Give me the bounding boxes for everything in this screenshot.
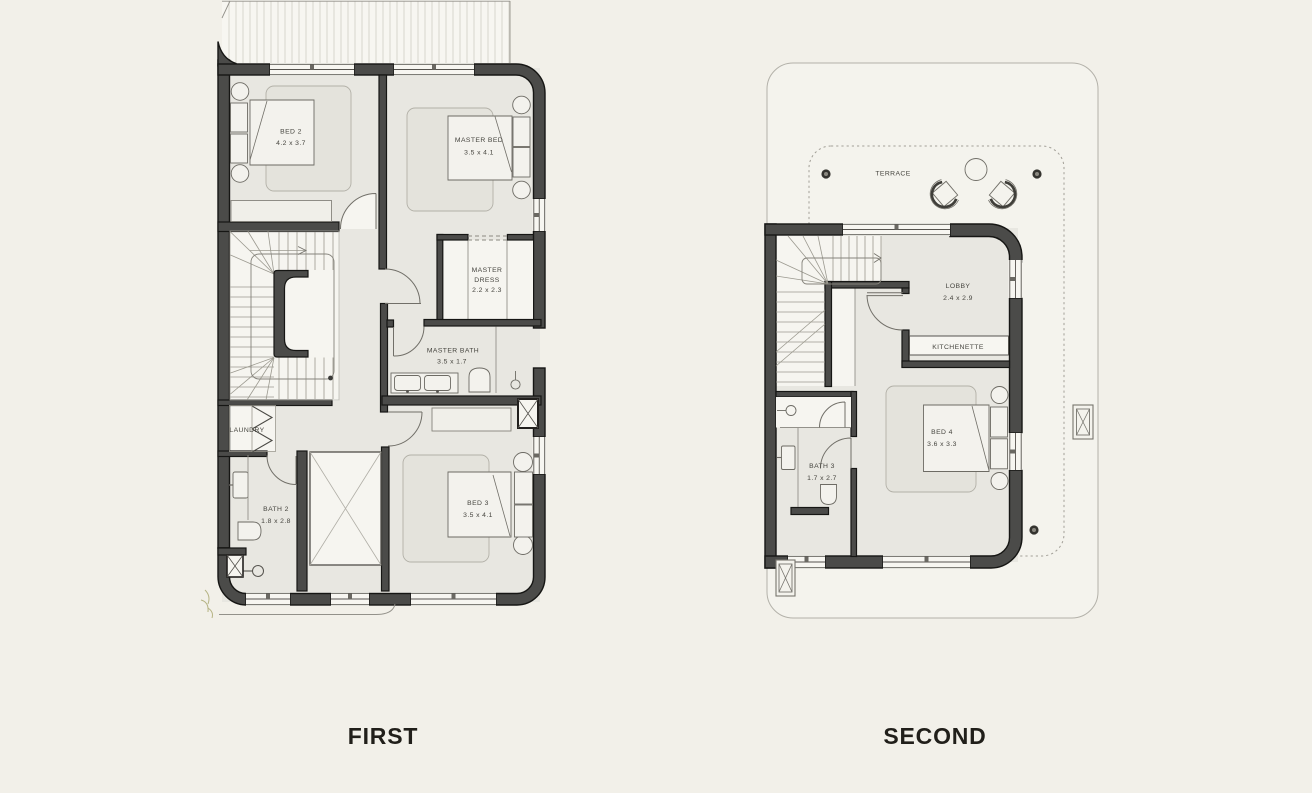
svg-text:FIRST: FIRST — [348, 723, 418, 749]
svg-text:2.4 x 2.9: 2.4 x 2.9 — [943, 295, 973, 302]
svg-text:3.5 x 4.1: 3.5 x 4.1 — [463, 512, 493, 519]
svg-text:BED 4: BED 4 — [931, 429, 953, 436]
svg-text:4.2 x 3.7: 4.2 x 3.7 — [276, 140, 306, 147]
svg-text:LAUNDRY: LAUNDRY — [229, 427, 264, 434]
svg-text:BED 3: BED 3 — [467, 500, 489, 507]
svg-text:KITCHENETTE: KITCHENETTE — [932, 344, 984, 351]
svg-text:3.5 x 4.1: 3.5 x 4.1 — [464, 150, 494, 157]
svg-text:TERRACE: TERRACE — [875, 171, 910, 178]
svg-text:2.2 x 2.3: 2.2 x 2.3 — [472, 287, 502, 294]
svg-text:MASTER BATH: MASTER BATH — [427, 348, 479, 355]
svg-text:BATH 3: BATH 3 — [809, 463, 835, 470]
svg-text:3.6 x 3.3: 3.6 x 3.3 — [927, 441, 957, 448]
svg-text:BATH 2: BATH 2 — [263, 506, 289, 513]
svg-text:MASTER: MASTER — [472, 267, 503, 274]
svg-text:1.8 x 2.8: 1.8 x 2.8 — [261, 518, 291, 525]
svg-text:1.7 x 2.7: 1.7 x 2.7 — [807, 475, 837, 482]
svg-text:SECOND: SECOND — [883, 723, 986, 749]
svg-text:MASTER BED: MASTER BED — [455, 137, 503, 144]
svg-text:BED 2: BED 2 — [280, 129, 302, 136]
svg-text:LOBBY: LOBBY — [946, 283, 971, 290]
svg-text:3.5 x 1.7: 3.5 x 1.7 — [437, 359, 467, 366]
svg-text:DRESS: DRESS — [474, 277, 499, 284]
